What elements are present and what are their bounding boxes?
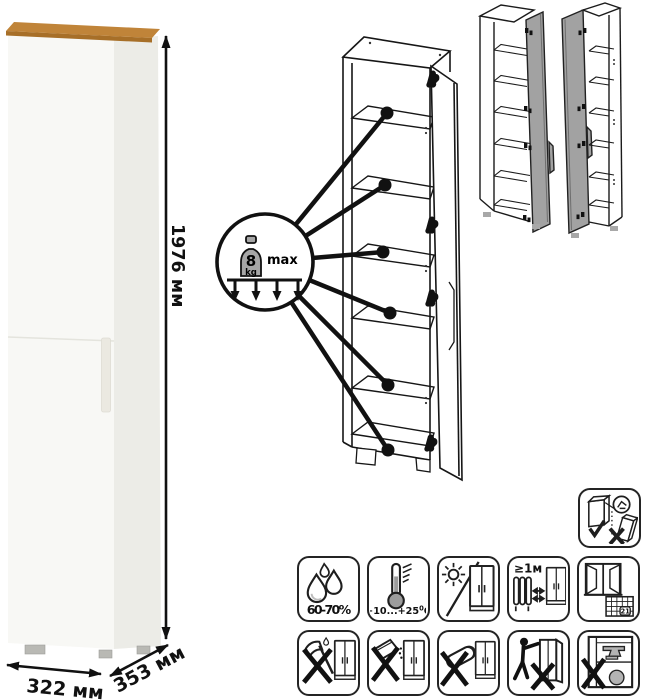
anvil-icon: [603, 647, 624, 660]
humidity-drops-icon: 60-70%: [301, 559, 357, 619]
person-figure: [515, 644, 538, 679]
radiator-distance-icon: ≥1м: [510, 559, 566, 619]
radiator-icon: [514, 577, 531, 611]
anti-tip-anchor-icon: [582, 492, 638, 544]
pictogram-no-overloading: [577, 630, 640, 696]
no-powder-icon: [370, 633, 426, 693]
variant-door-right: [480, 5, 554, 232]
sun-rays: [442, 563, 465, 586]
temperature-unit: C: [424, 606, 426, 617]
calendar-day: 21: [621, 607, 631, 615]
care-pictogram-grid: 60-70% +10...+250C: [297, 556, 640, 696]
pictogram-no-direct-sunlight: [437, 556, 500, 622]
max-load-callout: 8 kg max: [217, 214, 313, 310]
no-overload-icon: [580, 633, 636, 693]
load-unit: kg: [245, 268, 257, 278]
x-mark-icon: [583, 659, 604, 688]
shelf-point-dots: [377, 107, 397, 457]
no-sponge-icon: [440, 633, 496, 693]
variant-b-handle: [587, 127, 592, 158]
pictogram-humidity: 60-70%: [297, 556, 360, 622]
pictogram-ventilation: 21: [577, 556, 640, 622]
height-dimension-label: 1976 мм: [167, 224, 187, 307]
product-sheet: { "dimensions": { "height_label": "1976 …: [0, 0, 648, 700]
sun-slash-icon: [440, 559, 496, 619]
x-mark-icon: [303, 649, 330, 682]
width-arrow: [7, 665, 101, 674]
pictogram-no-sharp-tools: [297, 630, 360, 696]
pictogram-no-dragging: [507, 630, 570, 696]
calendar-icon: 21: [606, 597, 633, 616]
pictogram-anti-tip-wall-anchor: [578, 488, 641, 548]
thermometer-icon: +10...+250C: [370, 559, 426, 619]
pictogram-heat-source-distance: ≥1м: [507, 556, 570, 622]
width-dimension-label: 322 мм: [26, 675, 105, 700]
humidity-label: 60-70%: [306, 602, 351, 617]
shelf-load-diagram: 8 kg max: [210, 10, 480, 510]
variant-a-handle: [549, 142, 554, 173]
weight-icon: [246, 236, 256, 243]
load-qualifier: max: [267, 253, 298, 268]
temperature-range: +10...+25: [370, 606, 419, 617]
svg-text:+10...+250C: +10...+250C: [370, 605, 426, 617]
door-variant-drawings: [470, 0, 648, 245]
window-calendar-icon: 21: [580, 559, 636, 619]
pictogram-temperature: +10...+250C: [367, 556, 430, 622]
open-door: [431, 66, 462, 480]
magnifier-icon: [613, 496, 629, 512]
distance-label: ≥1м: [514, 562, 542, 576]
pictogram-no-wet-sponge: [437, 630, 500, 696]
pictogram-no-abrasive-powder: [367, 630, 430, 696]
door-handle-groove: [102, 338, 111, 412]
cabinet-photo: [6, 22, 161, 658]
variant-door-left: [562, 3, 622, 238]
spacing-arrows: [533, 588, 544, 601]
cabinet-line-drawing: [343, 37, 462, 480]
cabinet-photo-figure: 1976 мм 322 мм 353 мм: [0, 0, 210, 700]
no-axe-icon: [301, 633, 357, 693]
no-dragging-icon: [510, 633, 566, 693]
kettlebell-icon: [610, 670, 624, 684]
